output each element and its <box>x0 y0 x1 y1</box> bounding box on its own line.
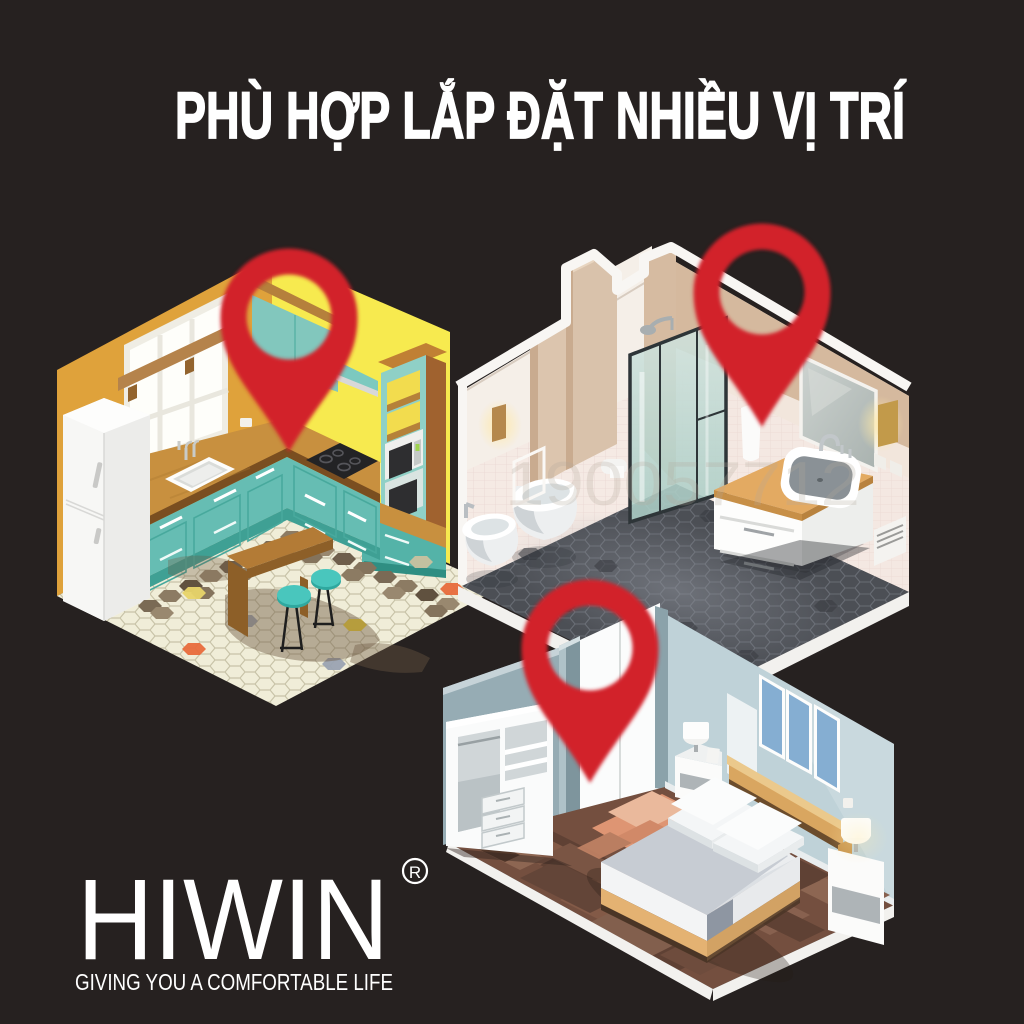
svg-text:HIWIN: HIWIN <box>77 856 389 984</box>
svg-text:190057712: 190057712 <box>505 450 860 519</box>
svg-text:PHÙ HỢP LẮP ĐẶT NHIỀU VỊ TRÍ: PHÙ HỢP LẮP ĐẶT NHIỀU VỊ TRÍ <box>175 78 906 152</box>
svg-text:GIVING YOU A COMFORTABLE LIFE: GIVING YOU A COMFORTABLE LIFE <box>75 969 393 995</box>
svg-text:R: R <box>409 863 421 882</box>
